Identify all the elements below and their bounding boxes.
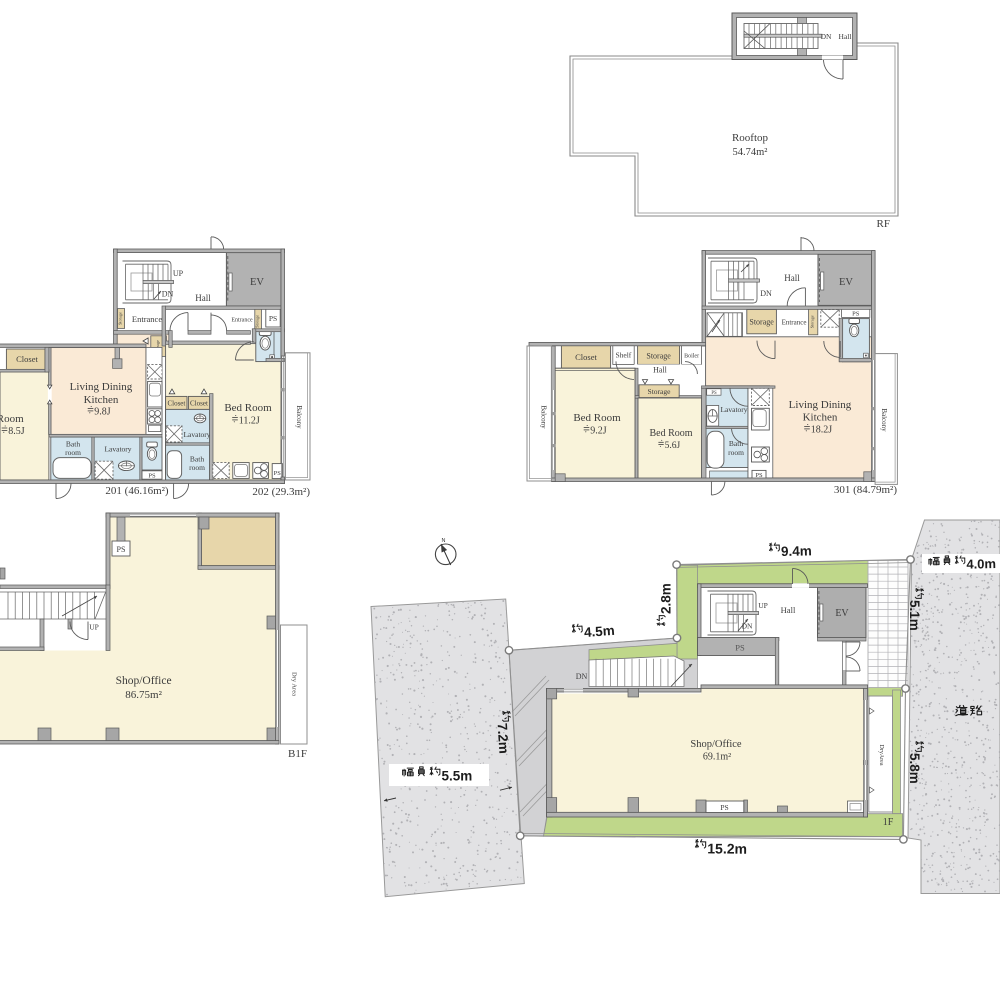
svg-text:4.0m: 4.0m	[966, 556, 996, 572]
svg-text:Bed Room: Bed Room	[573, 412, 621, 424]
svg-text:7.2m: 7.2m	[495, 723, 512, 755]
svg-text:Bath: Bath	[729, 439, 743, 448]
svg-text:Entrance: Entrance	[132, 314, 162, 324]
svg-text:Living Dining: Living Dining	[70, 381, 133, 393]
svg-text:202 (29.3m²): 202 (29.3m²)	[252, 486, 310, 498]
svg-text:DN: DN	[576, 672, 588, 681]
svg-text:Balcony: Balcony	[880, 408, 888, 432]
svg-text:Lavatory: Lavatory	[104, 445, 131, 454]
svg-text:room: room	[65, 448, 81, 457]
svg-text:Closet: Closet	[190, 400, 208, 408]
svg-text:PS: PS	[735, 643, 745, 653]
svg-text:Hall: Hall	[195, 293, 211, 303]
svg-text:Bed Room: Bed Room	[224, 402, 272, 414]
svg-text:Closet: Closet	[167, 400, 185, 408]
svg-text:Entrance: Entrance	[782, 319, 807, 327]
svg-text:Hall: Hall	[653, 366, 668, 375]
svg-text:PS: PS	[269, 314, 277, 323]
svg-text:11.2J: 11.2J	[239, 416, 260, 427]
svg-text:Balcony: Balcony	[540, 405, 548, 429]
svg-text:5.8m: 5.8m	[907, 753, 922, 784]
svg-text:54.74m²: 54.74m²	[733, 147, 768, 158]
svg-text:Living Dining: Living Dining	[789, 399, 852, 411]
svg-text:N: N	[442, 538, 446, 544]
svg-text:Closet: Closet	[575, 352, 597, 362]
svg-text:86.75m²: 86.75m²	[125, 689, 162, 701]
svg-text:Boiler: Boiler	[684, 354, 699, 360]
svg-text:DN: DN	[760, 289, 772, 298]
svg-text:Dry Area: Dry Area	[291, 672, 298, 696]
svg-text:Storage: Storage	[646, 352, 671, 361]
svg-text:Hall: Hall	[784, 273, 800, 283]
svg-text:301 (84.79m²): 301 (84.79m²)	[834, 484, 898, 496]
svg-text:room: room	[728, 448, 744, 457]
svg-text:UP: UP	[758, 601, 768, 610]
svg-text:RF: RF	[877, 218, 890, 230]
svg-text:Storage: Storage	[749, 318, 774, 327]
svg-text:Balcony: Balcony	[295, 405, 303, 429]
svg-text:Hall: Hall	[839, 32, 852, 41]
svg-text:Storage: Storage	[809, 315, 814, 328]
svg-text:18.2J: 18.2J	[811, 425, 833, 436]
svg-text:Shop/Office: Shop/Office	[116, 675, 172, 687]
svg-text:EV: EV	[835, 608, 849, 619]
svg-text:9.4m: 9.4m	[781, 543, 812, 559]
svg-text:PS: PS	[720, 803, 728, 812]
svg-text:PS: PS	[852, 311, 860, 318]
svg-text:201 (46.16m²): 201 (46.16m²)	[105, 485, 169, 497]
svg-text:PS: PS	[148, 473, 156, 480]
svg-text:5.1m: 5.1m	[907, 600, 922, 631]
svg-text:EV: EV	[250, 277, 264, 288]
svg-text:DN: DN	[821, 32, 832, 41]
svg-text:UP: UP	[173, 269, 184, 278]
svg-text:PS: PS	[711, 391, 717, 396]
svg-text:9.8J: 9.8J	[94, 407, 111, 418]
svg-text:Hall: Hall	[781, 605, 796, 615]
svg-text:EV: EV	[839, 277, 853, 288]
svg-text:room: room	[189, 463, 205, 472]
svg-text:Shelf: Shelf	[615, 351, 631, 360]
svg-text:Lavatory: Lavatory	[720, 405, 747, 414]
svg-text:5.6J: 5.6J	[665, 441, 681, 451]
svg-text:9.2J: 9.2J	[590, 426, 607, 437]
svg-text:B1F: B1F	[288, 748, 307, 760]
svg-text:8.5J: 8.5J	[8, 426, 25, 437]
svg-text:Entrance: Entrance	[231, 318, 253, 324]
svg-text:5.5m: 5.5m	[442, 768, 473, 783]
svg-text:DN: DN	[742, 622, 753, 631]
svg-text:Rooftop: Rooftop	[732, 132, 769, 144]
svg-text:Closet: Closet	[16, 354, 38, 364]
svg-text:Lavatory: Lavatory	[183, 430, 210, 439]
svg-text:Shop/Office: Shop/Office	[690, 739, 741, 750]
svg-text:Storage: Storage	[117, 312, 122, 325]
svg-text:1F: 1F	[883, 817, 894, 828]
svg-text:4.5m: 4.5m	[583, 623, 615, 640]
svg-text:DryArea: DryArea	[878, 745, 884, 766]
svg-text:UP: UP	[89, 623, 99, 632]
svg-text:Storage: Storage	[648, 387, 672, 396]
svg-text:Bed Room: Bed Room	[0, 413, 24, 425]
svg-text:15.2m: 15.2m	[707, 840, 747, 856]
svg-text:Kitchen: Kitchen	[803, 412, 838, 424]
svg-text:Kitchen: Kitchen	[84, 394, 119, 406]
svg-text:DN: DN	[162, 290, 174, 299]
svg-text:Bed Room: Bed Room	[649, 428, 692, 439]
svg-text:69.1m²: 69.1m²	[703, 752, 731, 763]
svg-text:2.8m: 2.8m	[658, 583, 673, 614]
svg-text:PS: PS	[274, 470, 282, 477]
svg-text:PS: PS	[117, 545, 126, 554]
svg-text:Storage: Storage	[254, 315, 259, 328]
